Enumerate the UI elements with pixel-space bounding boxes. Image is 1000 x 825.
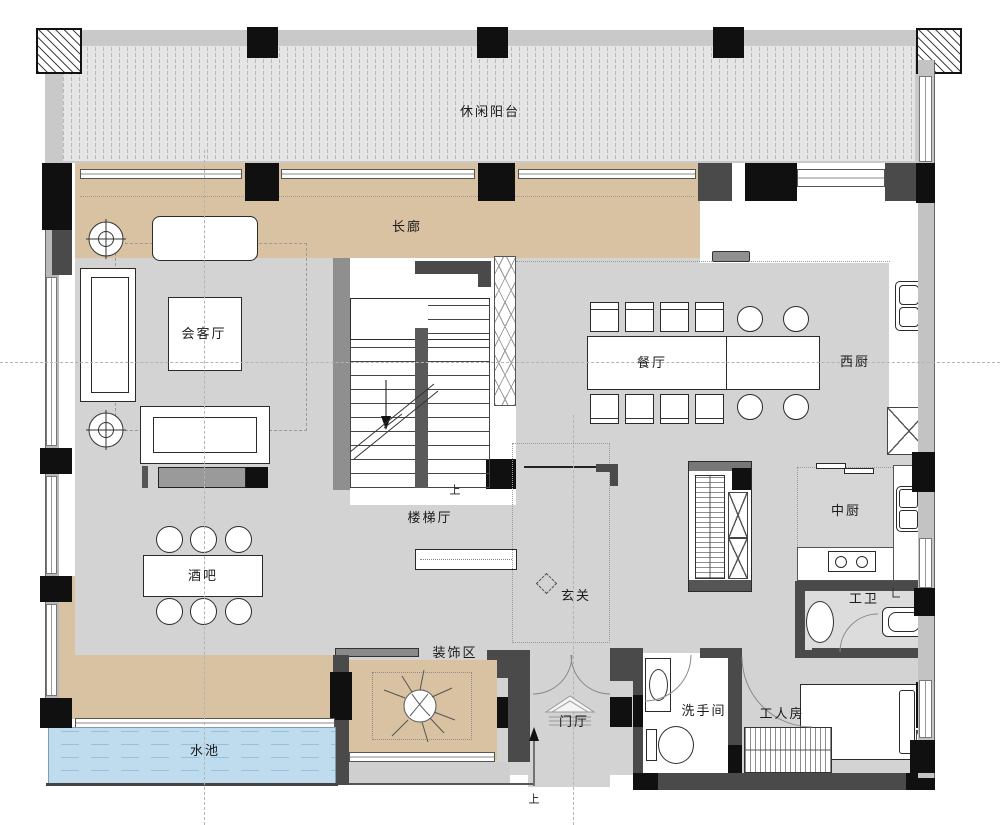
sliding-door-leaf — [844, 468, 874, 474]
room-label-foyer: 门厅 — [559, 714, 589, 730]
wall — [610, 648, 633, 681]
corridor-window — [518, 169, 696, 179]
floor-plan: 休闲阳台 长廊 会客厅 餐厅 西厨 楼梯厅 上 酒吧 玄关 中厨 工卫 装饰区 … — [0, 0, 1000, 825]
window-right — [919, 680, 932, 738]
dining-chair — [695, 394, 724, 424]
apron — [347, 762, 510, 783]
column-hatched-topleft — [36, 28, 82, 74]
stair-center-wall — [415, 328, 428, 488]
wardrobe-shelf — [728, 538, 748, 579]
burner — [835, 556, 847, 568]
burner — [856, 556, 868, 568]
bar-stool — [156, 526, 183, 553]
axis-line-vertical — [573, 415, 574, 825]
room-label-staff-bath: 工卫 — [849, 591, 879, 607]
sliding-door-leaf — [816, 463, 846, 469]
decoration-window — [349, 752, 495, 762]
dining-stool — [737, 306, 763, 332]
dining-floor-edge — [516, 261, 890, 262]
pool-edge — [46, 783, 338, 786]
column — [713, 27, 744, 58]
column — [245, 163, 279, 201]
column — [912, 452, 935, 492]
wall — [812, 648, 920, 658]
dining-chair — [590, 302, 619, 332]
dining-chair — [625, 394, 654, 424]
sofa-wide — [140, 406, 270, 464]
wardrobe — [688, 461, 752, 592]
wall — [795, 581, 927, 591]
column — [633, 773, 658, 790]
dining-stool — [783, 306, 809, 332]
window-left — [46, 476, 57, 574]
hall-bench — [415, 549, 517, 570]
bottom-tan-band — [58, 655, 333, 719]
room-label-staff-room: 工人房 — [759, 706, 804, 722]
wardrobe-column — [732, 468, 751, 490]
vanity-sink — [645, 658, 671, 712]
room-label-decoration: 装饰区 — [432, 645, 477, 661]
kitchen-window — [797, 169, 885, 187]
wardrobe-hanging — [695, 475, 725, 579]
column — [478, 163, 515, 201]
axis-line-vertical — [204, 150, 205, 825]
column — [633, 695, 643, 727]
bar-stool — [225, 598, 252, 625]
staff-closet — [744, 727, 832, 773]
window-left — [46, 604, 57, 696]
column — [728, 745, 742, 775]
screen-line — [524, 466, 598, 468]
corridor-window — [80, 169, 242, 179]
wardrobe-shelf — [728, 492, 748, 538]
room-label-chinese-kitchen: 中厨 — [831, 503, 861, 519]
toilet-bowl — [658, 726, 694, 764]
dining-chair — [695, 302, 724, 332]
room-label-pool: 水池 — [190, 743, 220, 759]
wall — [700, 648, 728, 658]
tv-bench — [158, 467, 246, 488]
apron-edge — [347, 783, 533, 785]
room-label-dining: 餐厅 — [637, 355, 667, 371]
sink-basin — [899, 510, 918, 529]
corridor-table — [152, 216, 258, 261]
dining-table — [587, 336, 820, 390]
glass-screen — [494, 256, 516, 406]
foyer-step — [528, 775, 610, 787]
wardrobe-cap — [689, 580, 751, 591]
side-panel — [142, 466, 148, 488]
column — [247, 27, 278, 58]
stair-hall-wall — [333, 258, 350, 490]
column — [40, 698, 72, 728]
sink-basin — [899, 285, 919, 305]
room-label-corridor: 长廊 — [392, 219, 422, 235]
column — [916, 163, 935, 203]
room-label-stair-hall: 楼梯厅 — [407, 510, 452, 526]
column — [42, 163, 72, 230]
column — [477, 27, 508, 58]
sofa-long — [80, 268, 136, 402]
wall — [508, 650, 530, 762]
column — [330, 672, 352, 720]
sink-bowl — [649, 669, 668, 701]
column — [610, 697, 632, 727]
bench-line — [420, 559, 512, 560]
dining-stool — [783, 394, 809, 420]
column — [40, 448, 72, 474]
dining-chair — [660, 394, 689, 424]
sink-basin — [899, 307, 919, 327]
wall — [478, 261, 491, 287]
dining-chair — [660, 302, 689, 332]
window-right — [919, 76, 932, 162]
label-up-entrance: 上 — [529, 793, 540, 806]
corridor-dotted-line — [80, 196, 694, 197]
bar-stool — [156, 598, 183, 625]
toilet-tank — [646, 729, 657, 761]
room-label-bar: 酒吧 — [188, 568, 218, 584]
stove — [828, 551, 876, 572]
sofa-seat — [91, 277, 129, 393]
decoration-border — [372, 672, 472, 740]
label-up-stair: 上 — [450, 484, 461, 497]
wall — [698, 163, 732, 201]
column — [914, 588, 935, 616]
wall-bracket — [610, 464, 618, 486]
wall — [795, 591, 805, 651]
pedestal-sink — [806, 601, 834, 643]
wall — [885, 163, 918, 201]
wall-bottom — [633, 773, 935, 790]
tv-bench-end — [246, 467, 268, 488]
sofa-seat — [153, 417, 257, 453]
corridor-window — [281, 169, 475, 179]
room-label-powder-room: 洗手间 — [681, 703, 726, 719]
dining-chair — [625, 302, 654, 332]
room-label-west-kitchen: 西厨 — [840, 354, 870, 370]
column — [745, 163, 797, 201]
wall — [52, 230, 72, 275]
dining-stool — [737, 394, 763, 420]
bar-stool — [225, 526, 252, 553]
stair-flight-right — [428, 300, 490, 488]
radiator — [712, 251, 750, 262]
column — [40, 576, 72, 602]
table-divider — [726, 337, 727, 389]
room-label-balcony: 休闲阳台 — [460, 104, 520, 120]
window-right — [919, 538, 932, 588]
column — [910, 740, 935, 773]
entry-rug — [512, 443, 610, 643]
room-label-entry: 玄关 — [561, 588, 591, 604]
dining-chair — [590, 394, 619, 424]
room-label-reception: 会客厅 — [181, 326, 226, 342]
